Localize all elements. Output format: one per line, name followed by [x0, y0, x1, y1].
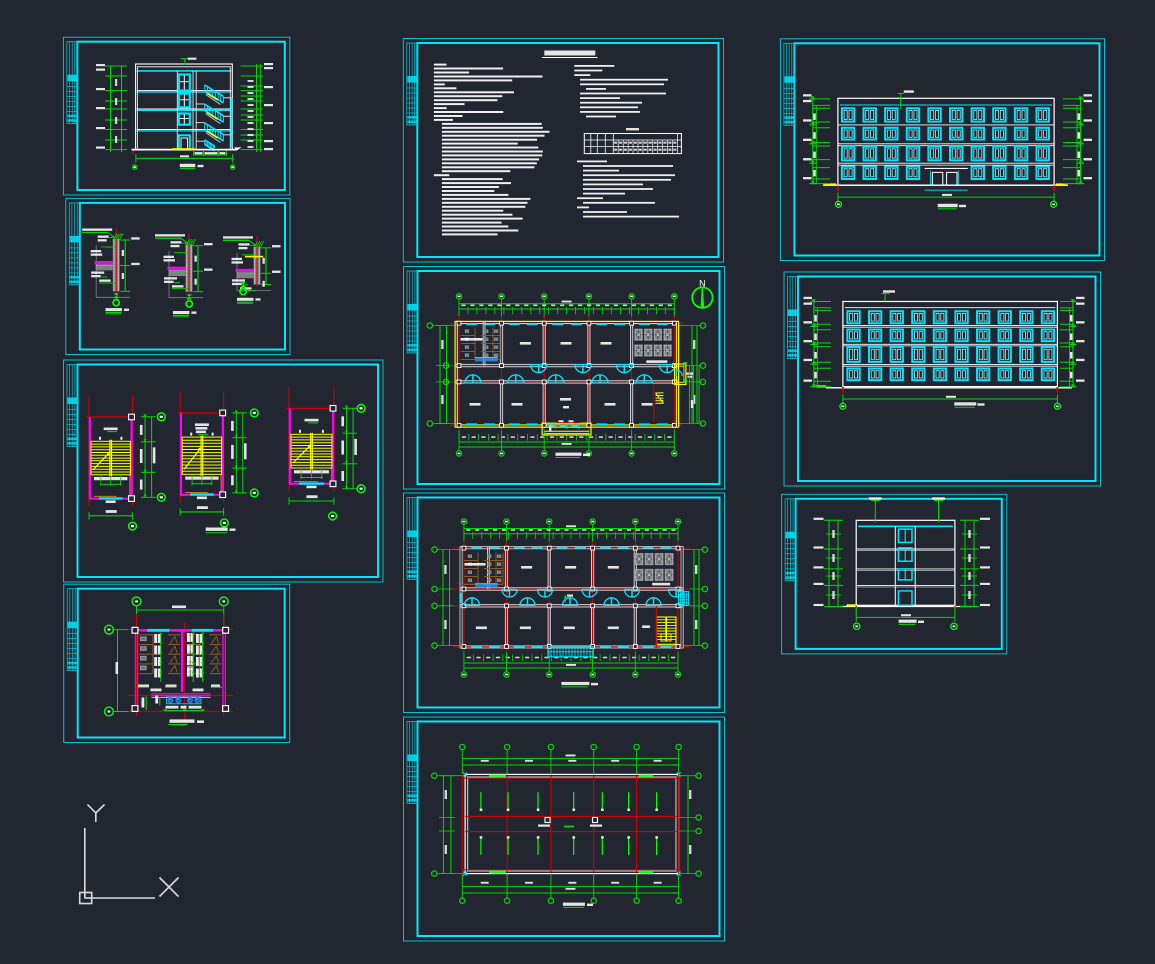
svg-text:N: N [699, 279, 706, 289]
